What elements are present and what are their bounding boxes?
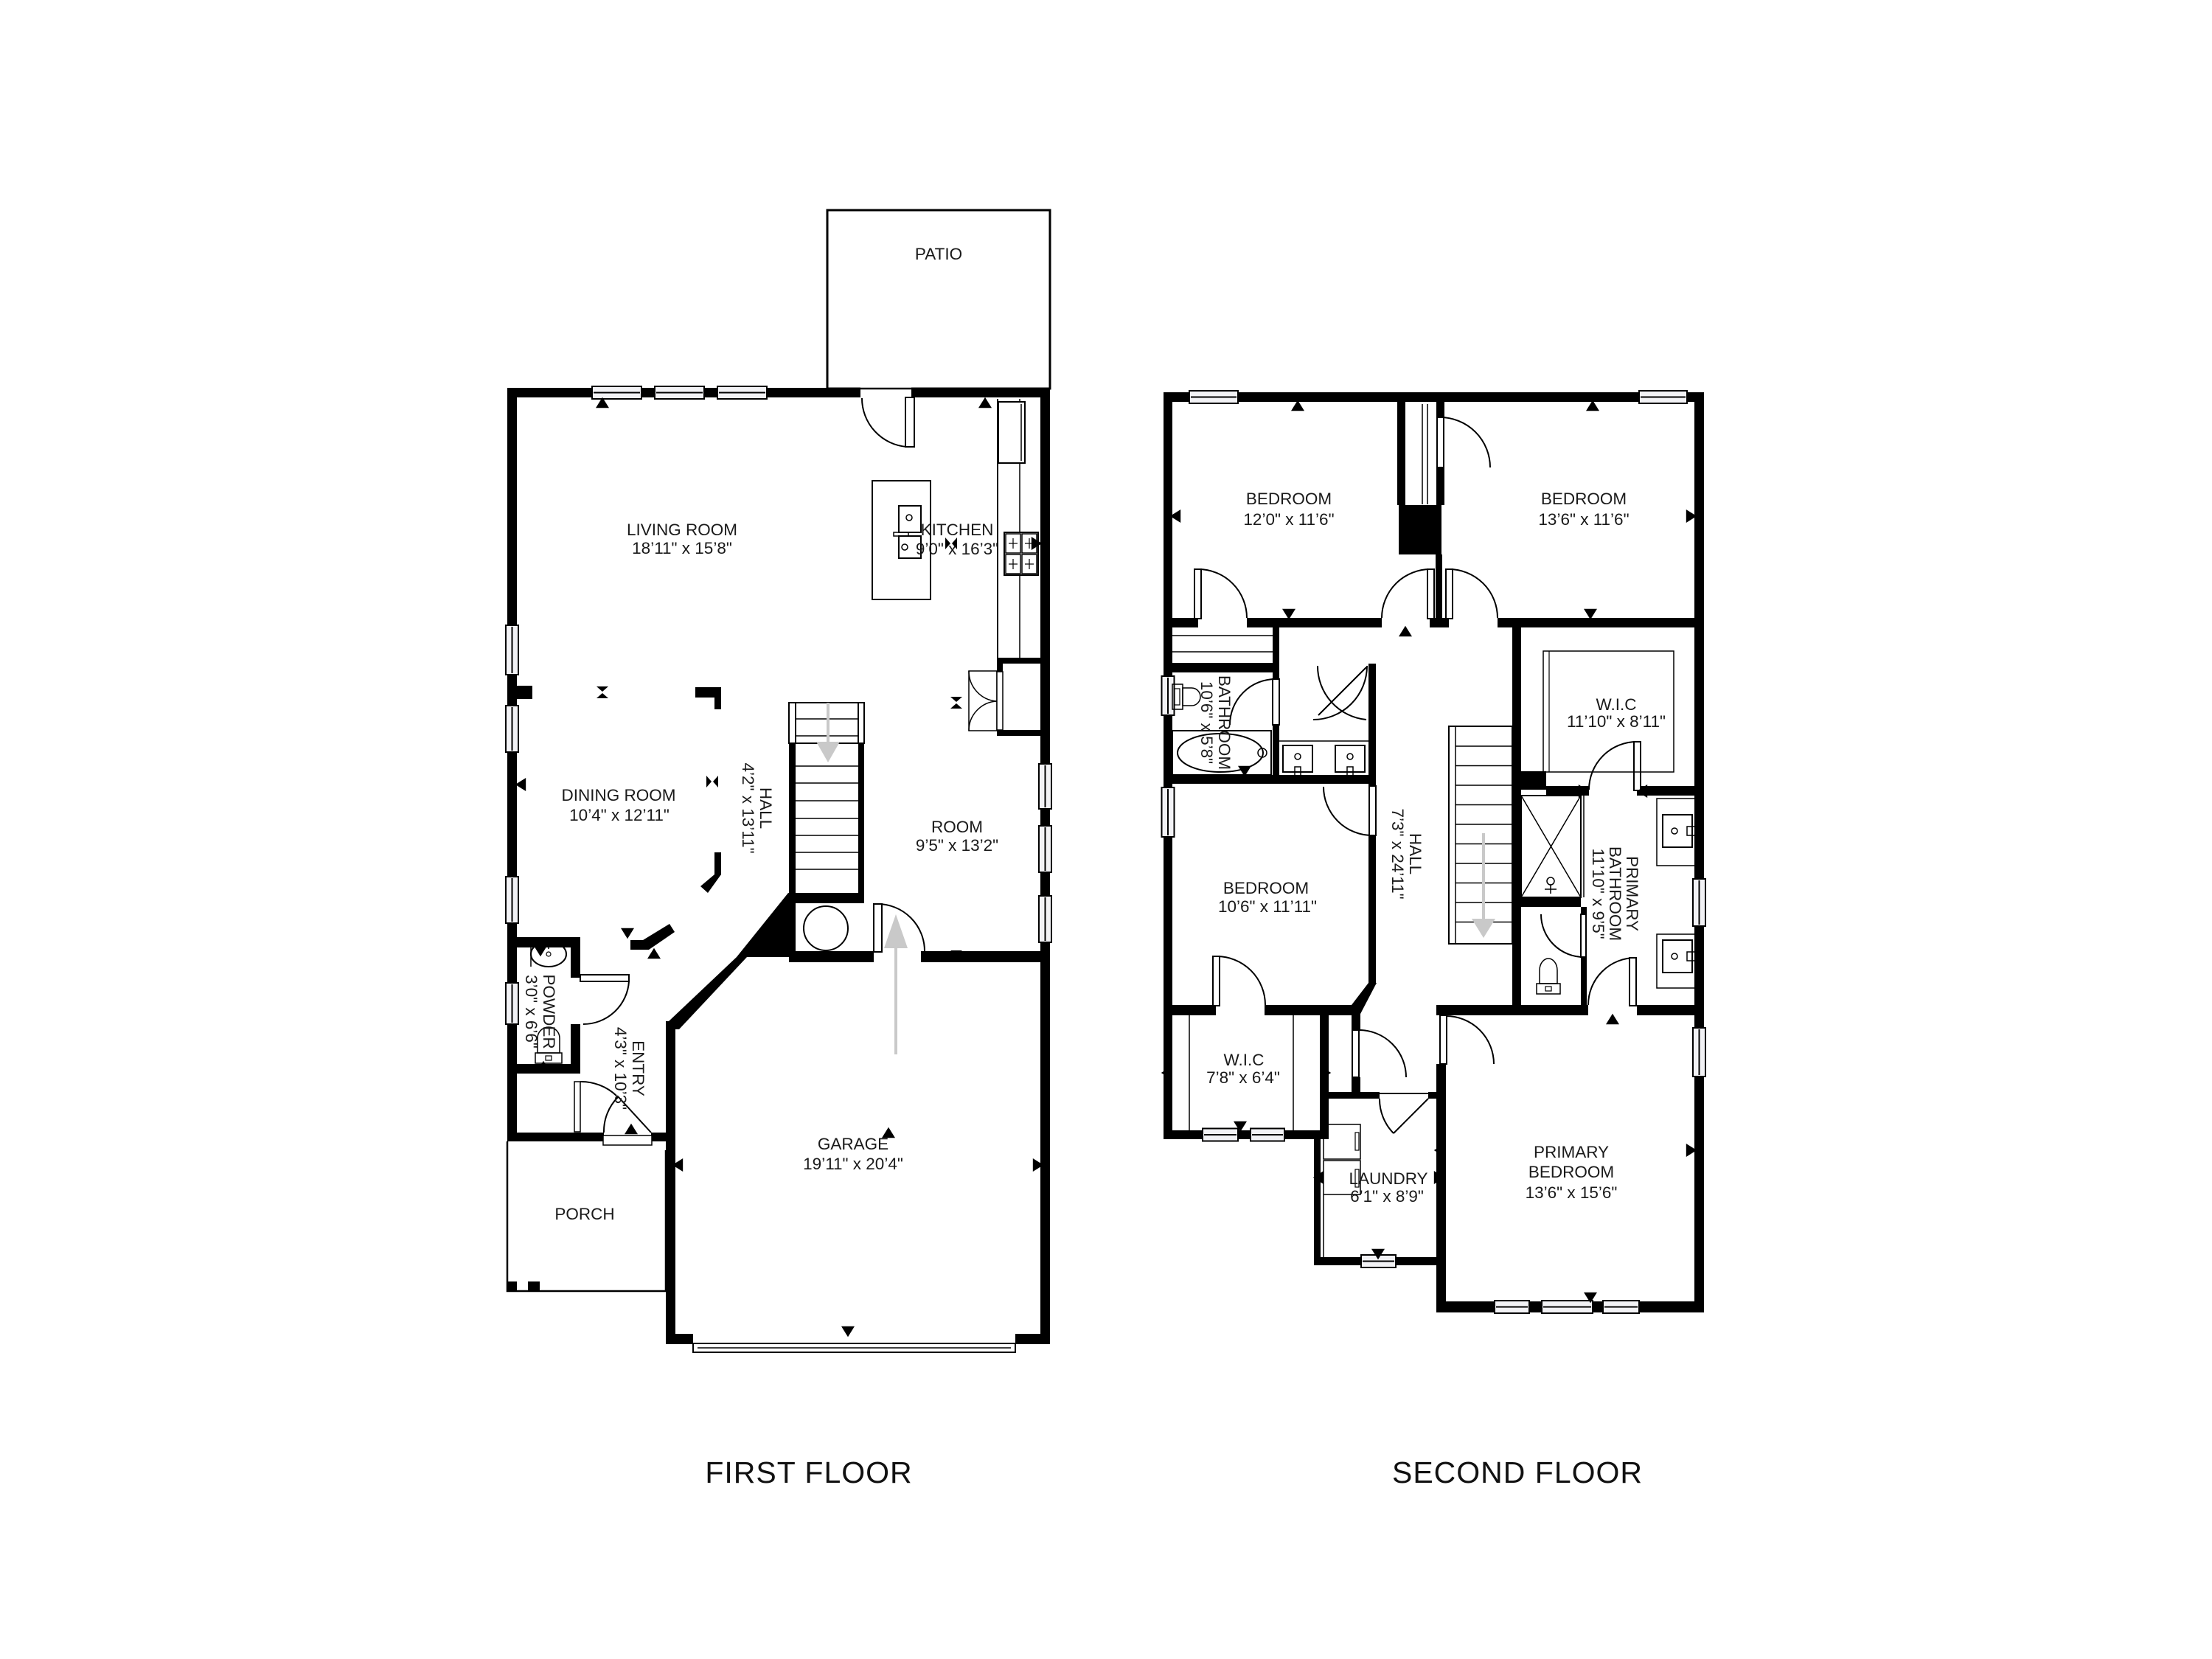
svg-text:PATIO: PATIO [915, 245, 962, 263]
svg-text:W.I.C: W.I.C [1596, 695, 1637, 714]
svg-text:19’11" x 20’4": 19’11" x 20’4" [803, 1155, 903, 1173]
svg-text:W.I.C: W.I.C [1224, 1051, 1265, 1069]
svg-text:LAUNDRY: LAUNDRY [1349, 1169, 1427, 1188]
svg-text:BEDROOM: BEDROOM [1246, 490, 1332, 508]
svg-text:7’8" x 6’4": 7’8" x 6’4" [1206, 1068, 1280, 1087]
svg-text:BEDROOM: BEDROOM [1223, 879, 1309, 897]
svg-text:SECOND FLOOR: SECOND FLOOR [1392, 1455, 1643, 1489]
svg-text:12’0" x 11’6": 12’0" x 11’6" [1243, 510, 1334, 529]
svg-text:10’4" x 12’11": 10’4" x 12’11" [569, 806, 669, 824]
svg-text:BEDROOM: BEDROOM [1528, 1163, 1614, 1181]
svg-text:PRIMARY: PRIMARY [1534, 1143, 1609, 1161]
svg-text:11’10" x 8’11": 11’10" x 8’11" [1567, 712, 1666, 731]
svg-text:10’6" x 11’11": 10’6" x 11’11" [1218, 897, 1317, 916]
svg-text:BATHROOM10’6" x 5’8": BATHROOM10’6" x 5’8" [1197, 675, 1234, 770]
svg-text:DINING ROOM: DINING ROOM [562, 786, 676, 804]
svg-text:POWDER3’0" x 6’6": POWDER3’0" x 6’6" [522, 974, 558, 1048]
svg-text:KITCHEN: KITCHEN [921, 521, 994, 539]
svg-text:PRIMARYBATHROOM11’10" x 9’5": PRIMARYBATHROOM11’10" x 9’5" [1589, 846, 1641, 941]
svg-text:LIVING ROOM: LIVING ROOM [627, 521, 737, 539]
svg-text:ROOM: ROOM [931, 818, 983, 836]
svg-text:9’5" x 13’2": 9’5" x 13’2" [916, 836, 998, 855]
svg-text:9’0" x 16’3": 9’0" x 16’3" [916, 540, 998, 558]
svg-text:13’6" x 11’6": 13’6" x 11’6" [1538, 510, 1629, 529]
svg-text:18’11" x 15’8": 18’11" x 15’8" [632, 539, 732, 557]
svg-text:13’6" x 15’6": 13’6" x 15’6" [1526, 1183, 1618, 1202]
svg-text:PORCH: PORCH [554, 1205, 614, 1223]
svg-text:6’1" x 8’9": 6’1" x 8’9" [1350, 1187, 1424, 1206]
svg-text:FIRST FLOOR: FIRST FLOOR [705, 1455, 912, 1489]
svg-text:GARAGE: GARAGE [818, 1135, 888, 1153]
svg-text:BEDROOM: BEDROOM [1541, 490, 1627, 508]
